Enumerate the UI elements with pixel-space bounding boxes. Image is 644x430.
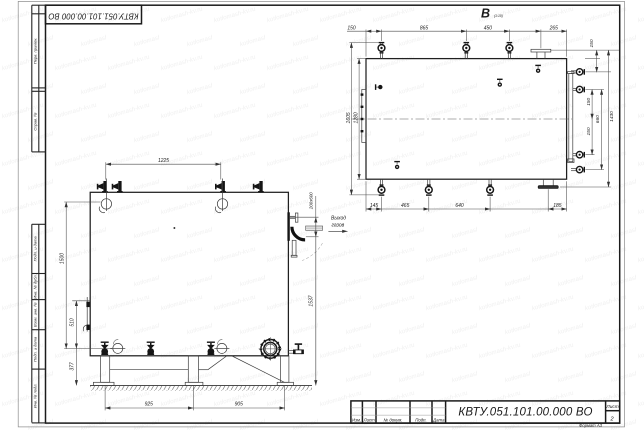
svg-text:Лист: Лист — [605, 404, 618, 410]
svg-text:Справ. №: Справ. № — [33, 112, 38, 131]
svg-text:Подп. и дата: Подп. и дата — [33, 336, 38, 362]
svg-text:150: 150 — [347, 25, 356, 31]
svg-text:865: 865 — [420, 25, 429, 31]
svg-text:Дата: Дата — [432, 417, 445, 422]
svg-text:640: 640 — [455, 203, 464, 209]
svg-text:450: 450 — [484, 25, 493, 31]
svg-text:Подп. и дата: Подп. и дата — [33, 236, 38, 262]
svg-text:660: 660 — [595, 115, 601, 123]
svg-text:1537: 1537 — [309, 295, 315, 306]
svg-text:905: 905 — [235, 402, 244, 408]
svg-text:№ докум.: № докум. — [384, 417, 403, 422]
svg-text:Выход: Выход — [331, 216, 346, 222]
svg-text:Инв. № подл.: Инв. № подл. — [33, 383, 38, 408]
svg-text:1500: 1500 — [59, 253, 65, 264]
svg-text:265: 265 — [549, 25, 559, 31]
svg-text:Лист: Лист — [363, 417, 375, 422]
svg-text:150: 150 — [589, 39, 595, 47]
svg-text:1225: 1225 — [158, 158, 169, 164]
svg-text:510: 510 — [70, 318, 76, 327]
svg-text:В: В — [481, 6, 490, 20]
svg-text:150: 150 — [586, 127, 592, 135]
svg-text:Изм.: Изм. — [352, 417, 361, 422]
svg-text:газов: газов — [332, 223, 345, 229]
svg-text:Перв. примен.: Перв. примен. — [33, 38, 38, 65]
svg-text:Подп.: Подп. — [415, 417, 426, 422]
svg-text:200х600: 200х600 — [308, 192, 313, 210]
svg-text:185: 185 — [553, 203, 562, 209]
svg-text:1430: 1430 — [609, 111, 615, 122]
svg-text:465: 465 — [401, 203, 410, 209]
svg-text:КВТУ.051.101.00.000 ВО: КВТУ.051.101.00.000 ВО — [48, 11, 138, 20]
svg-text:925: 925 — [145, 402, 154, 408]
svg-text:Взам. инв. №: Взам. инв. № — [33, 302, 38, 327]
svg-text:Формат А3: Формат А3 — [579, 423, 603, 428]
svg-text:150: 150 — [586, 97, 592, 105]
svg-text:145: 145 — [370, 203, 379, 209]
svg-text:1280: 1280 — [354, 112, 360, 123]
svg-text:Инв. № дубл.: Инв. № дубл. — [33, 274, 38, 299]
svg-text:377: 377 — [69, 362, 75, 371]
svg-text:КВТУ.051.101.00.000 ВО: КВТУ.051.101.00.000 ВО — [458, 407, 592, 419]
svg-text:1605: 1605 — [346, 112, 352, 123]
svg-text:(1:10): (1:10) — [494, 14, 503, 18]
